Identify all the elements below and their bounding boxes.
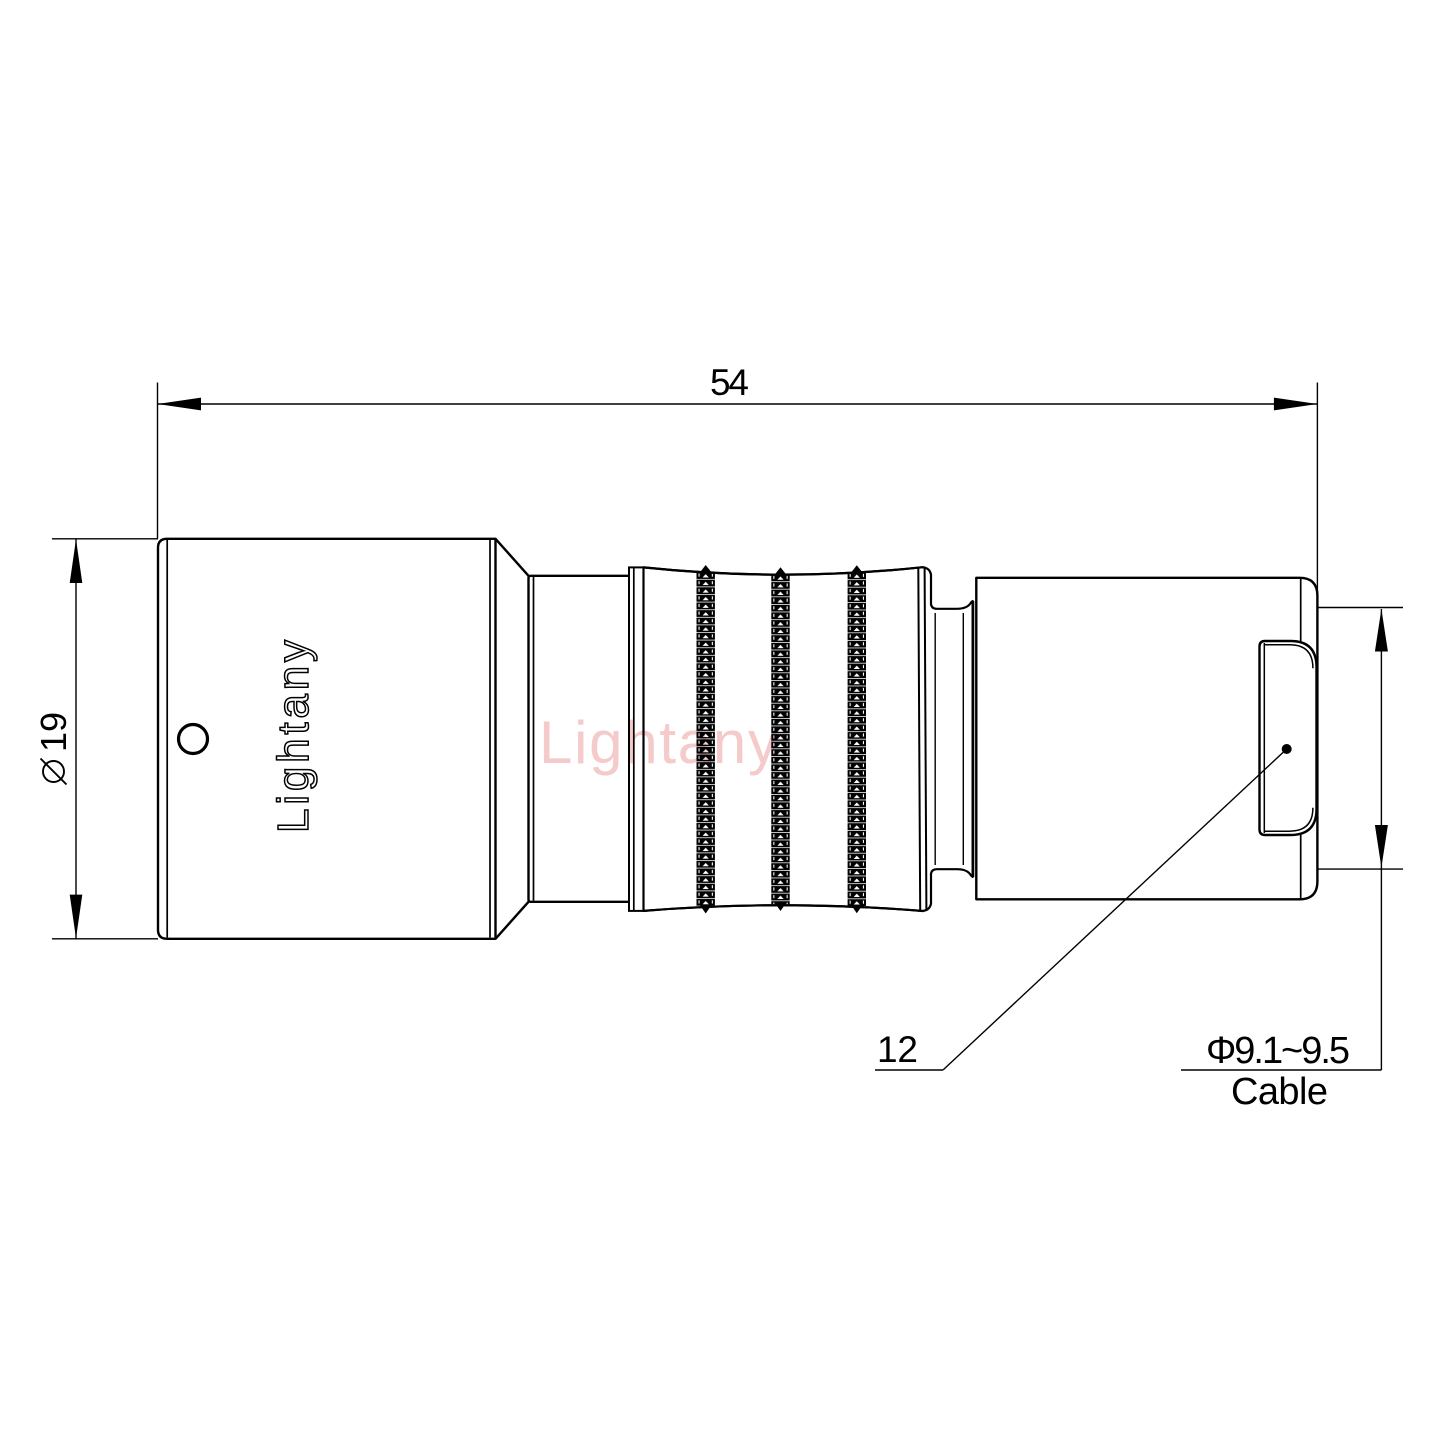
svg-text:Lightany: Lightany (539, 709, 778, 776)
svg-text:Φ9.1~9.5: Φ9.1~9.5 (1206, 1030, 1350, 1072)
svg-text:19: 19 (33, 712, 74, 752)
svg-text:54: 54 (710, 362, 749, 403)
svg-text:12: 12 (877, 1029, 918, 1070)
svg-text:Cable: Cable (1231, 1071, 1328, 1113)
